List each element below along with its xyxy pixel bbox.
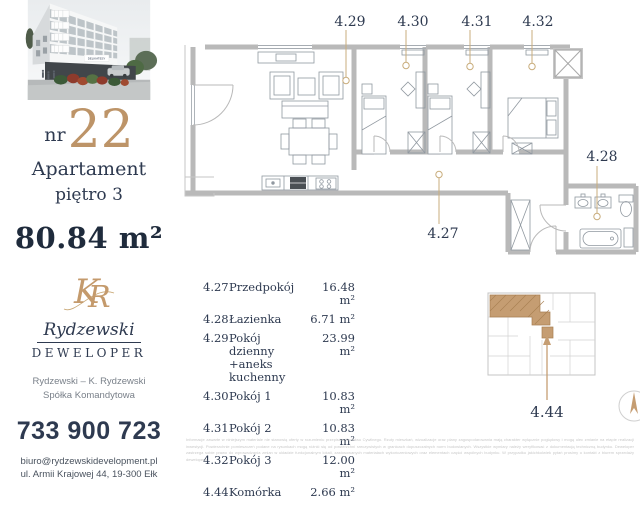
label-hall: 4.27 (427, 226, 458, 242)
area-table-row: 4.28Łazienka6.71 m² (203, 313, 355, 326)
email-address: biuro@rydzewskidevelopment.pl (21, 456, 158, 467)
balcony-outline (185, 45, 214, 196)
logo-name: Rydzewski (37, 320, 140, 343)
key-plan: 4.44 (488, 293, 595, 421)
storefront-sign-text: DELIKATESY (88, 56, 106, 60)
room-name: Łazienka (229, 313, 303, 326)
unit-type: Apartament (32, 158, 146, 180)
legal-disclaimer: Informacje zawarte w niniejszym material… (186, 437, 634, 463)
room-area: 6.71 m² (303, 313, 355, 326)
room-area: 23.99 m² (303, 332, 355, 358)
label-storage: 4.44 (530, 403, 563, 421)
room-number: 4.27 (203, 281, 229, 294)
label-living: 4.29 (334, 14, 365, 30)
room-area: 10.83 m² (303, 390, 355, 416)
compass-icon (619, 391, 640, 421)
room-area: 16.48 m² (303, 281, 355, 307)
floor-plan-panel: 4.29 4.30 4.31 4.32 4.28 4.27 (178, 0, 640, 480)
room-name: Pokój 1 (229, 390, 303, 403)
room-name: Komórka (229, 486, 303, 499)
company-name: Rydzewski – K. Rydzewski Spółka Komandyt… (33, 375, 146, 404)
shaft (553, 48, 583, 79)
sidebar: DELIKATESY nr 22 Apartam (0, 0, 178, 480)
label-room2: 4.31 (461, 14, 492, 30)
company-line1: Rydzewski – K. Rydzewski (33, 375, 146, 390)
area-table-row: 4.29Pokój dzienny +aneks kuchenny23.99 m… (203, 332, 355, 384)
area-table-row: 4.27Przedpokój16.48 m² (203, 281, 355, 307)
postal-address: ul. Armii Krajowej 44, 19-300 Ełk (21, 469, 158, 480)
developer-logo: K R Rydzewski DEWELOPER (32, 271, 147, 360)
unit-number-block: nr 22 (44, 108, 134, 152)
phone-number: 733 900 723 (17, 417, 162, 446)
label-room1: 4.30 (397, 14, 428, 30)
furniture (258, 50, 633, 250)
unit-prefix: nr (44, 126, 65, 145)
logo-tagline: DEWELOPER (32, 346, 147, 360)
label-bath: 4.28 (586, 149, 617, 165)
room-number: 4.44 (203, 486, 229, 499)
unit-area: 80.84 m² (15, 221, 163, 255)
room-number: 4.30 (203, 390, 229, 403)
unit-number: 22 (68, 108, 134, 152)
pedestrians (42, 70, 55, 79)
room-name: Pokój dzienny +aneks kuchenny (229, 332, 303, 384)
room-number: 4.29 (203, 332, 229, 345)
company-line2: Spółka Komandytowa (33, 389, 146, 404)
room-area: 2.66 m² (303, 486, 355, 499)
area-table-row: 4.44Komórka2.66 m² (203, 486, 355, 499)
logo-monogram: K R (54, 271, 124, 315)
room-number: 4.31 (203, 422, 229, 435)
room-name: Przedpokój (229, 281, 303, 294)
building-photo: DELIKATESY (0, 0, 178, 100)
area-table-row: 4.30Pokój 110.83 m² (203, 390, 355, 416)
label-room3: 4.32 (522, 14, 553, 30)
room-name: Pokój 2 (229, 422, 303, 435)
room-number: 4.28 (203, 313, 229, 326)
svg-text:R: R (87, 280, 111, 315)
apartment-flyer: { "sidebar": { "photo": { "sign": "DELIK… (0, 0, 640, 480)
rooms-table: 4.27Przedpokój16.48 m²4.28Łazienka6.71 m… (203, 281, 355, 505)
unit-floor: piętro 3 (55, 185, 123, 205)
